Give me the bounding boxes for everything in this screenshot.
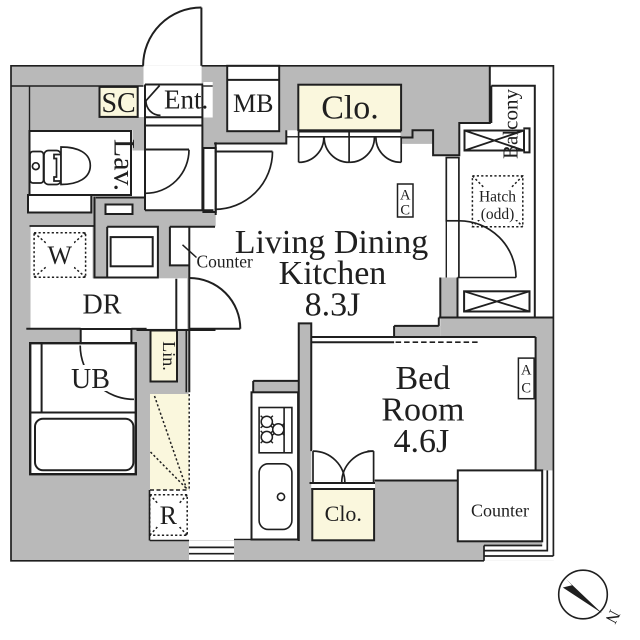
svg-text:Lav.: Lav.	[108, 139, 141, 191]
svg-text:DR: DR	[83, 290, 122, 321]
svg-text:SC: SC	[101, 88, 135, 119]
svg-text:Hatch: Hatch	[479, 189, 516, 206]
svg-text:C: C	[521, 381, 531, 397]
svg-text:Clo.: Clo.	[325, 501, 362, 526]
svg-text:Balcony: Balcony	[499, 89, 523, 159]
svg-text:R: R	[160, 501, 178, 530]
svg-text:Lin.: Lin.	[159, 341, 179, 371]
svg-text:W: W	[48, 241, 73, 270]
svg-text:UB: UB	[71, 364, 110, 395]
svg-text:A: A	[521, 363, 532, 379]
svg-text:Clo.: Clo.	[321, 90, 379, 127]
svg-text:A: A	[400, 188, 411, 204]
svg-text:Counter: Counter	[471, 501, 529, 521]
svg-text:4.6J: 4.6J	[394, 423, 450, 460]
svg-text:Counter: Counter	[197, 252, 254, 272]
svg-text:Ent.: Ent.	[164, 85, 208, 115]
svg-text:C: C	[400, 203, 410, 219]
svg-text:8.3J: 8.3J	[305, 286, 361, 323]
svg-text:(odd): (odd)	[481, 206, 515, 223]
svg-text:MB: MB	[233, 89, 273, 118]
